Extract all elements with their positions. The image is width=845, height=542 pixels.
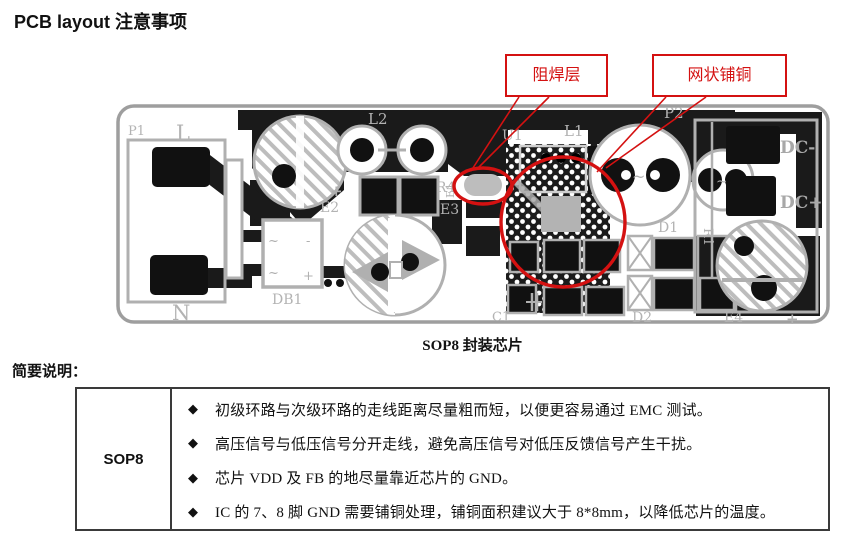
chip-body (541, 196, 581, 232)
dc-plus-label: DC+ (780, 193, 823, 213)
note-text: IC 的 7、8 脚 GND 需要铺铜处理，铺铜面积建议大于 8*8mm，以降低… (215, 501, 775, 522)
l2-label: L2 (368, 110, 388, 128)
diamond-bullet-icon: ◆ (188, 470, 198, 486)
solder-mask-callout: 阻焊层 (505, 54, 608, 97)
l1-label: L1 (564, 122, 584, 140)
e3-label: E3 (440, 202, 459, 218)
line-label: L (176, 121, 190, 145)
d1-label: D1 (658, 220, 678, 236)
db1-label: DB1 (272, 292, 302, 308)
l1-winding-mark: ~ (716, 174, 728, 190)
table-row-header: SOP8 (77, 389, 172, 529)
diamond-bullet-icon: ◆ (188, 504, 198, 520)
db1-ac-mark: ~ (268, 234, 279, 249)
table-row: ◆ 芯片 VDD 及 FB 的地尽量靠近芯片的 GND。 (188, 461, 822, 495)
db1-minus-mark: - (306, 234, 310, 249)
neutral-label: N (172, 301, 190, 325)
db1-ac-mark: ~ (268, 266, 279, 281)
e4-label: E4 (724, 310, 743, 326)
dc-minus-label: DC- (780, 138, 815, 158)
l1-winding-mark: ~ (632, 167, 645, 186)
db1-plus-mark: + (303, 269, 314, 284)
note-text: 芯片 VDD 及 FB 的地尽量靠近芯片的 GND。 (215, 467, 517, 488)
fuse-footprint (226, 160, 242, 278)
e2-label: E2 (320, 200, 339, 216)
e4-plus-mark: + (786, 310, 799, 328)
p1-label: P1 (128, 124, 145, 139)
page-title: PCB layout 注意事项 (14, 8, 187, 34)
table-row: ◆ 高压信号与低压信号分开走线，避免高压信号对低压反馈信号产生干扰。 (188, 426, 822, 460)
note-text: 初级环路与次级环路的走线距离尽量粗而短，以便更容易通过 EMC 测试。 (215, 399, 712, 420)
diamond-bullet-icon: ◆ (188, 401, 198, 417)
r1-label: R1 (700, 228, 715, 246)
e2-plus-mark: + (330, 182, 343, 200)
e4-capacitor: E4 + (717, 221, 807, 328)
table-row: ◆ IC 的 7、8 脚 GND 需要铺铜处理，铺铜面积建议大于 8*8mm，以… (188, 495, 822, 529)
sop8-notes-table: SOP8 ◆ 初级环路与次级环路的走线距离尽量粗而短，以便更容易通过 EMC 测… (75, 387, 830, 531)
d2-label: D2 (632, 310, 652, 326)
pcb-figure: P1 L N ~ ~ - + DB1 + E2 (0, 40, 845, 362)
c1-label: C1 (492, 310, 510, 325)
section-label: 简要说明： (12, 360, 87, 381)
document-page: PCB layout 注意事项 (0, 0, 845, 542)
table-row: ◆ 初级环路与次级环路的走线距离尽量粗而短，以便更容易通过 EMC 测试。 (188, 392, 822, 426)
note-text: 高压信号与低压信号分开走线，避免高压信号对低压反馈信号产生干扰。 (215, 433, 701, 454)
mesh-copper-callout: 网状铺铜 (652, 54, 787, 97)
figure-caption: SOP8 封装芯片 (115, 334, 830, 355)
table-notes-cell: ◆ 初级环路与次级环路的走线距离尽量粗而短，以便更容易通过 EMC 测试。 ◆ … (172, 389, 828, 529)
diamond-bullet-icon: ◆ (188, 435, 198, 451)
solder-mask-pad (464, 174, 502, 196)
